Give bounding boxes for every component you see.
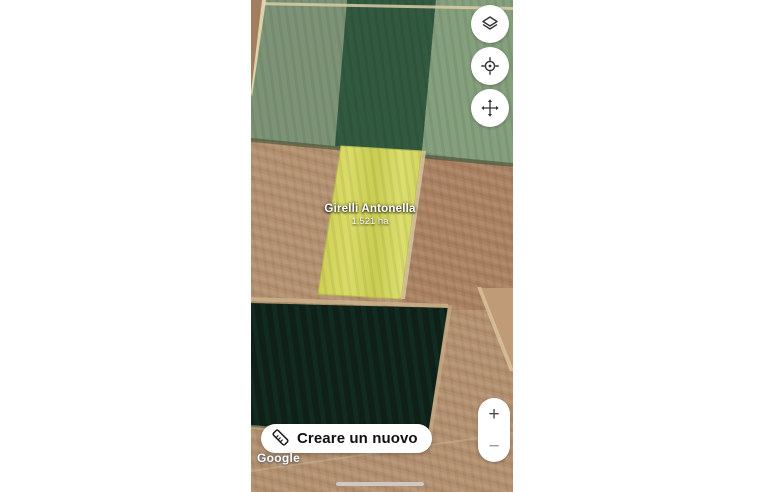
zoom-in-button[interactable]: + <box>478 398 510 430</box>
home-indicator[interactable] <box>336 482 424 486</box>
layers-icon <box>480 14 500 34</box>
gps-target-icon <box>480 56 500 76</box>
ruler-icon <box>271 428 290 450</box>
screenshot-canvas: Girelli Antonella 1.521 ha + − Creare <box>0 0 764 492</box>
google-attribution: Google <box>257 451 300 465</box>
map-viewport[interactable]: Girelli Antonella 1.521 ha + − Creare <box>251 0 513 492</box>
layers-button[interactable] <box>471 5 509 43</box>
map-tools <box>471 5 509 131</box>
zoom-control: + − <box>478 398 510 462</box>
create-new-button-label: Creare un nuovo <box>297 430 418 447</box>
create-new-button[interactable]: Creare un nuovo <box>261 424 432 453</box>
gps-button[interactable] <box>471 47 509 85</box>
zoom-out-button[interactable]: − <box>478 430 510 462</box>
pan-button[interactable] <box>471 89 509 127</box>
pan-arrows-icon <box>480 98 500 118</box>
